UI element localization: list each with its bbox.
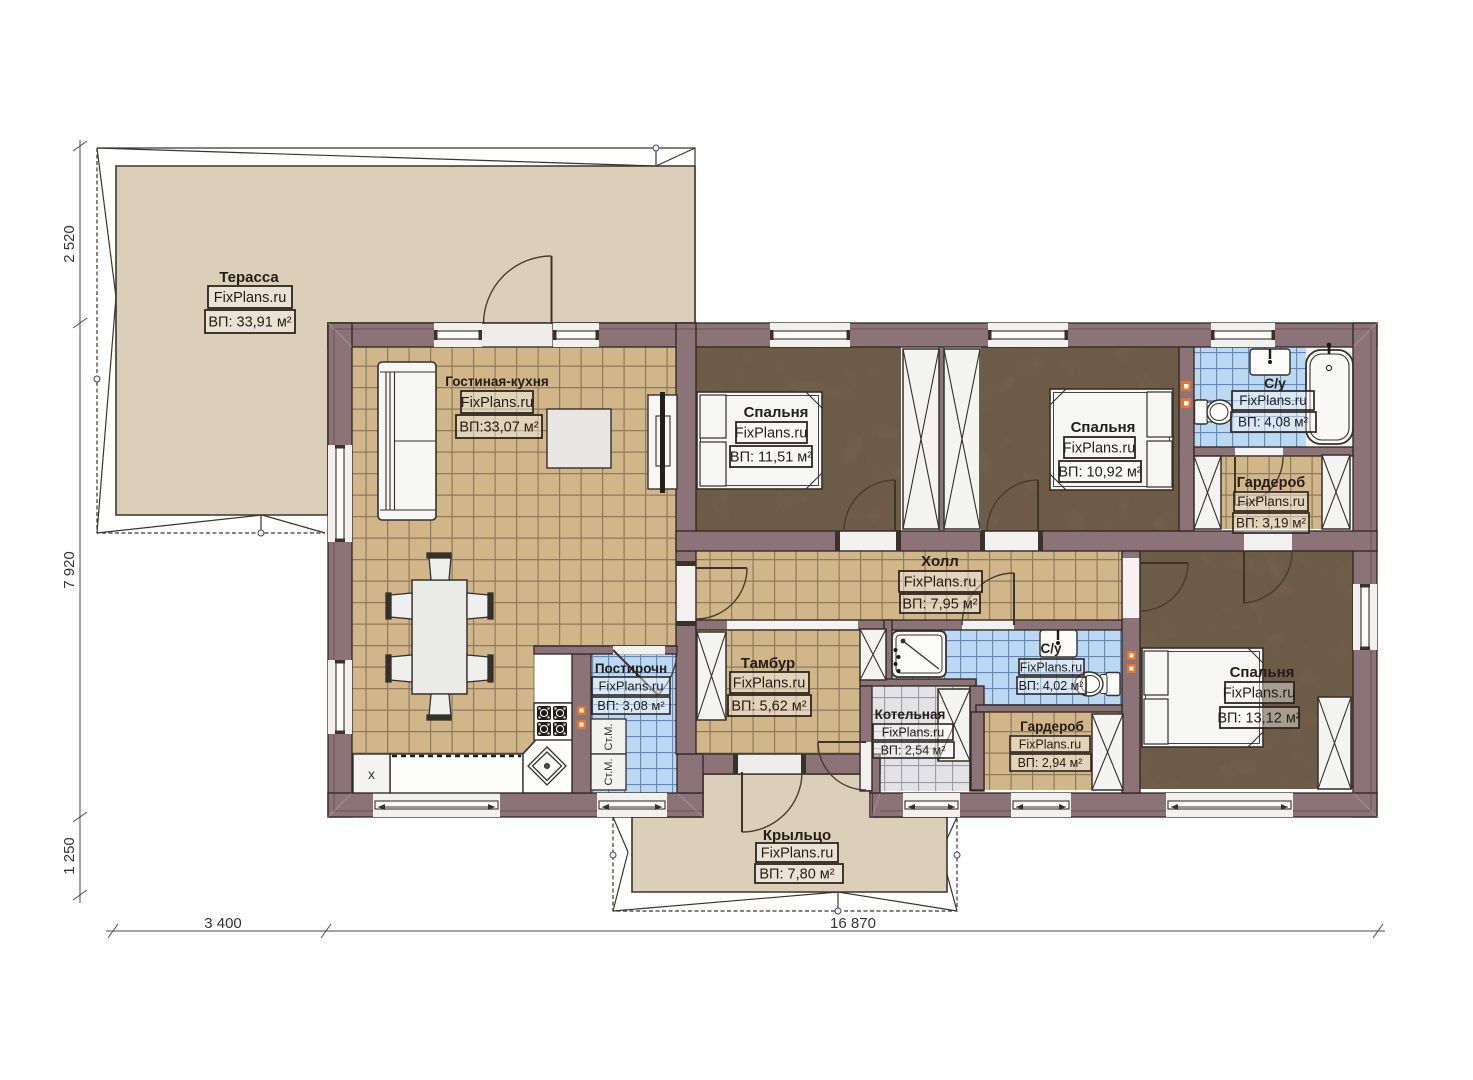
svg-text:FixPlans.ru: FixPlans.ru — [761, 846, 834, 862]
svg-text:FixPlans.ru: FixPlans.ru — [1063, 441, 1136, 457]
svg-text:Постирочн: Постирочн — [595, 661, 667, 676]
svg-text:FixPlans.ru: FixPlans.ru — [461, 395, 534, 411]
svg-text:С/у: С/у — [1264, 375, 1286, 391]
svg-text:ВП: 33,91 м²: ВП: 33,91 м² — [208, 315, 291, 331]
svg-text:Гардероб: Гардероб — [1237, 475, 1306, 491]
svg-text:Спальня: Спальня — [1230, 664, 1295, 681]
svg-text:ВП: 4,08 м²: ВП: 4,08 м² — [1238, 415, 1309, 430]
svg-text:7 920: 7 920 — [61, 551, 78, 589]
svg-text:FixPlans.ru: FixPlans.ru — [882, 726, 945, 740]
svg-text:x: x — [368, 766, 375, 782]
svg-text:ВП: 7,95 м²: ВП: 7,95 м² — [902, 597, 977, 613]
svg-text:Гардероб: Гардероб — [1020, 719, 1084, 734]
svg-text:FixPlans.ru: FixPlans.ru — [1020, 661, 1083, 675]
svg-text:1 250: 1 250 — [61, 837, 78, 875]
svg-text:ВП: 13,12 м²: ВП: 13,12 м² — [1217, 711, 1300, 727]
svg-text:ВП: 3,08 м²: ВП: 3,08 м² — [597, 698, 665, 713]
svg-text:ВП: 10,92 м²: ВП: 10,92 м² — [1058, 465, 1141, 481]
svg-text:Спальня: Спальня — [744, 404, 809, 421]
svg-text:Котельная: Котельная — [875, 707, 946, 722]
svg-text:ВП: 11,51 м²: ВП: 11,51 м² — [730, 450, 812, 466]
svg-text:ВП: 5,62 м²: ВП: 5,62 м² — [731, 699, 806, 715]
svg-text:Крыльцо: Крыльцо — [763, 827, 831, 844]
svg-text:Ст.М.: Ст.М. — [603, 758, 615, 785]
svg-text:ВП: 3,19 м²: ВП: 3,19 м² — [1236, 516, 1307, 531]
svg-text:FixPlans.ru: FixPlans.ru — [598, 679, 663, 694]
svg-text:FixPlans.ru: FixPlans.ru — [904, 575, 977, 591]
svg-text:Терасса: Терасса — [219, 269, 279, 286]
svg-text:FixPlans.ru: FixPlans.ru — [1237, 494, 1305, 509]
svg-text:16 870: 16 870 — [830, 915, 876, 932]
svg-text:FixPlans.ru: FixPlans.ru — [1223, 686, 1296, 702]
svg-text:FixPlans.ru: FixPlans.ru — [1239, 393, 1307, 408]
svg-text:ВП: 2,54 м²: ВП: 2,54 м² — [881, 744, 946, 758]
svg-text:2 520: 2 520 — [61, 225, 78, 263]
svg-text:ВП: 7,80 м²: ВП: 7,80 м² — [759, 867, 834, 883]
svg-text:Холл: Холл — [921, 553, 959, 570]
svg-text:FixPlans.ru: FixPlans.ru — [733, 676, 806, 692]
svg-text:ВП: 4,02 м²: ВП: 4,02 м² — [1019, 679, 1084, 693]
svg-text:ВП:33,07 м²: ВП:33,07 м² — [459, 420, 538, 436]
svg-text:FixPlans.ru: FixPlans.ru — [214, 290, 287, 306]
svg-text:Ст.М.: Ст.М. — [603, 723, 615, 750]
svg-text:ВП: 2,94 м²: ВП: 2,94 м² — [1018, 756, 1083, 770]
svg-text:3 400: 3 400 — [204, 915, 242, 932]
svg-text:Гостиная-кухня: Гостиная-кухня — [445, 374, 548, 389]
svg-text:FixPlans.ru: FixPlans.ru — [735, 426, 808, 442]
svg-text:С/у: С/у — [1040, 641, 1062, 656]
svg-text:FixPlans.ru: FixPlans.ru — [1019, 738, 1082, 752]
svg-text:Спальня: Спальня — [1071, 419, 1136, 436]
svg-text:Тамбур: Тамбур — [741, 655, 795, 672]
